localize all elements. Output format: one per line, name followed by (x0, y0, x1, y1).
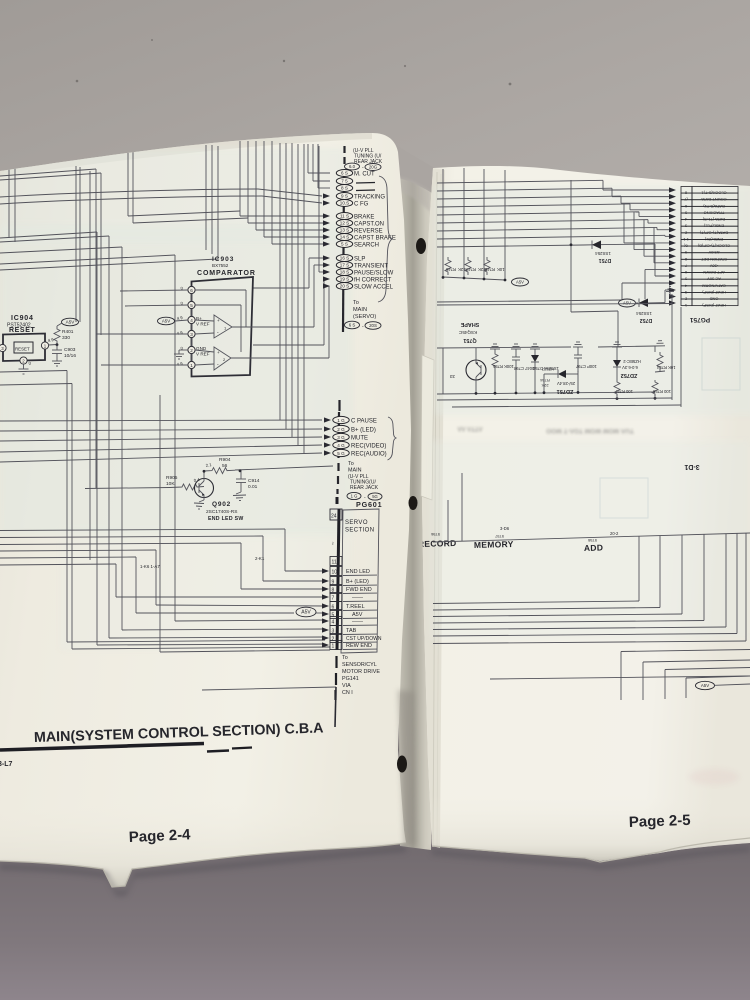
svg-text:IC904: IC904 (11, 315, 34, 322)
svg-text:4 G: 4 G (337, 443, 345, 448)
svg-text:6.0: 6.0 (349, 164, 356, 169)
svg-text:5 S: 5 S (341, 242, 348, 247)
svg-text:B+ (LED): B+ (LED) (346, 579, 369, 585)
svg-text:END LED: END LED (346, 569, 370, 575)
svg-text:0.01: 0.01 (248, 484, 258, 490)
svg-text:7: 7 (332, 596, 335, 602)
svg-text:2-K1: 2-K1 (255, 556, 265, 561)
svg-text:33: 33 (449, 374, 455, 379)
svg-text:6 S: 6 S (341, 171, 348, 176)
svg-text:2: 2 (332, 637, 335, 643)
svg-text:4: 4 (190, 318, 193, 323)
svg-text:5756: 5756 (430, 532, 440, 537)
svg-text:5 G: 5 G (337, 451, 345, 456)
svg-text:(SERVO): (SERVO) (353, 314, 376, 320)
svg-text:A5V: A5V (701, 683, 709, 688)
svg-text:Q751: Q751 (463, 337, 476, 343)
svg-text:A5V: A5V (301, 610, 311, 616)
svg-text:BX7552: BX7552 (212, 263, 229, 268)
svg-text:BRAKE: BRAKE (354, 214, 374, 220)
svg-text:20S: 20S (369, 323, 377, 328)
svg-text:24: 24 (331, 514, 337, 520)
svg-text:C PAUSE: C PAUSE (351, 418, 377, 424)
svg-text:HEAT (DISP): HEAT (DISP) (702, 303, 726, 308)
svg-text:8.2K: 8.2K (458, 267, 467, 272)
svg-text:R748: R748 (484, 267, 495, 272)
svg-text:SLP: SLP (354, 256, 365, 262)
svg-text:10: 10 (332, 570, 338, 576)
svg-text:5: 5 (190, 303, 193, 308)
svg-text:25/-28.4V: 25/-28.4V (557, 381, 575, 386)
svg-text:PG751: PG751 (690, 316, 711, 323)
svg-text:19 S: 19 S (340, 277, 349, 282)
svg-text:R754: R754 (656, 365, 667, 370)
svg-text:D751: D751 (599, 257, 612, 263)
svg-text:R754: R754 (539, 378, 549, 383)
svg-text:R905: R905 (166, 475, 178, 481)
svg-text:1 G: 1 G (337, 418, 345, 423)
svg-text:FWD END: FWD END (346, 587, 372, 593)
svg-text:V REF: V REF (196, 322, 210, 327)
svg-text:A5V: A5V (623, 301, 631, 306)
svg-text:100: 100 (663, 389, 671, 394)
svg-text:6.0-6.3V: 6.0-6.3V (622, 365, 638, 370)
svg-text:ɅTTɅ ɅɅ: ɅTTɅ ɅɅ (457, 425, 482, 431)
svg-text:12 S: 12 S (340, 221, 349, 226)
svg-text:3 G: 3 G (337, 435, 345, 440)
svg-text:100: 100 (625, 389, 633, 394)
svg-text:SECTION: SECTION (345, 528, 374, 534)
svg-text:T.REEL: T.REEL (346, 604, 365, 610)
svg-text:A5V: A5V (352, 612, 363, 618)
svg-text:3: 3 (190, 332, 193, 337)
svg-text:B+ (LED): B+ (LED) (351, 427, 376, 433)
svg-text:13 S: 13 S (340, 228, 349, 233)
svg-text:5757: 5757 (494, 534, 504, 539)
svg-text:4: 4 (332, 620, 335, 626)
svg-text:100K: 100K (504, 364, 514, 369)
svg-text:22K: 22K (541, 383, 548, 388)
svg-text:2 G: 2 G (337, 427, 345, 432)
svg-text:R758: R758 (652, 389, 663, 394)
svg-text:REVERSE: REVERSE (354, 228, 383, 234)
svg-text:MOTOR DRIVE: MOTOR DRIVE (342, 669, 380, 675)
svg-text:A5V: A5V (162, 319, 170, 324)
svg-text:≀: ≀ (332, 541, 334, 547)
svg-text:ZD752: ZD752 (621, 372, 638, 378)
svg-text:CST UP/DOWN: CST UP/DOWN (346, 636, 382, 642)
svg-text:330: 330 (62, 335, 70, 341)
svg-text:——: —— (352, 619, 364, 625)
svg-text:A5V: A5V (516, 280, 524, 285)
svg-text:2: 2 (190, 348, 193, 353)
svg-text:17 S: 17 S (340, 263, 349, 268)
svg-text:C FG: C FG (354, 201, 369, 207)
svg-text:HZ5BC-2: HZ5BC-2 (623, 359, 641, 364)
svg-text:SENSOR/CYL: SENSOR/CYL (342, 662, 377, 668)
svg-text:PG601: PG601 (356, 500, 382, 509)
svg-text:REAR JACK: REAR JACK (350, 485, 379, 491)
svg-text:16 S: 16 S (340, 256, 349, 261)
svg-text:7 5: 7 5 (341, 179, 348, 184)
svg-text:11 S: 11 S (340, 214, 349, 219)
svg-text:TRACKING: TRACKING (354, 194, 385, 200)
svg-text:20G: 20G (369, 165, 378, 170)
svg-text:R401: R401 (62, 329, 74, 335)
svg-text:6 S: 6 S (349, 323, 356, 328)
svg-text:10K: 10K (497, 267, 505, 272)
svg-text:Page 2-5: Page 2-5 (629, 812, 691, 831)
svg-text:M. CUT: M. CUT (354, 171, 375, 177)
svg-text:1: 1 (332, 644, 335, 650)
svg-text:11: 11 (332, 560, 337, 566)
svg-text:PG141: PG141 (342, 676, 359, 682)
svg-text:C797: C797 (575, 364, 586, 369)
svg-text:ZD751: ZD751 (557, 388, 574, 394)
svg-text:END LED SW: END LED SW (208, 516, 244, 522)
svg-text:REC(AUDIO): REC(AUDIO) (351, 451, 387, 457)
svg-text:CN I: CN I (342, 690, 353, 696)
svg-text:To: To (353, 300, 359, 306)
svg-text:To: To (342, 655, 348, 661)
svg-text:V REF: V REF (196, 352, 210, 357)
svg-text:HZ5Z7: HZ5Z7 (541, 367, 554, 372)
svg-text:R747: R747 (465, 267, 476, 272)
svg-text:TUɅ MOM WOM TOɅ-T MOO: TUɅ MOM WOM TOɅ-T MOO (546, 427, 634, 434)
svg-text:+: + (217, 318, 220, 323)
svg-text:PAUSE/SLOW: PAUSE/SLOW (354, 270, 394, 276)
svg-text:100P: 100P (587, 364, 597, 369)
svg-text:2SC1740S-RS: 2SC1740S-RS (206, 509, 237, 515)
svg-text:Q902: Q902 (212, 501, 231, 508)
svg-text:R746: R746 (445, 267, 456, 272)
svg-text:KSQ45C: KSQ45C (458, 330, 477, 335)
svg-text:MAIN: MAIN (348, 468, 362, 474)
svg-text:R757: R757 (614, 389, 625, 394)
svg-text:MUTE: MUTE (351, 435, 368, 441)
svg-text:SLOW ACCEL: SLOW ACCEL (354, 284, 394, 290)
svg-text:10/16: 10/16 (64, 353, 76, 359)
svg-text:Page 2-4: Page 2-4 (128, 826, 191, 846)
svg-text:+: + (217, 350, 220, 355)
svg-text:9 S: 9 S (341, 194, 348, 199)
svg-text:1SS254: 1SS254 (636, 311, 652, 316)
svg-text:TAB: TAB (346, 628, 357, 634)
svg-text:SHAPE: SHAPE (460, 321, 479, 327)
svg-text:R904: R904 (219, 457, 231, 463)
svg-text:1: 1 (190, 363, 193, 368)
svg-text:18 S: 18 S (340, 270, 349, 275)
svg-text:20 S: 20 S (340, 284, 349, 289)
svg-text:COMPARATOR: COMPARATOR (197, 270, 256, 277)
svg-text:CAPST.ON: CAPST.ON (354, 221, 384, 227)
svg-text:1SS254: 1SS254 (595, 251, 611, 256)
svg-text:ADD: ADD (584, 542, 604, 553)
svg-text:To: To (348, 461, 354, 467)
svg-text:5G: 5G (372, 494, 378, 499)
svg-text:IC903: IC903 (212, 256, 234, 263)
svg-text:C914: C914 (248, 478, 260, 484)
svg-text:8 S: 8 S (341, 186, 348, 191)
svg-text:10.S: 10.S (340, 201, 349, 206)
svg-text:RECORD: RECORD (418, 538, 457, 549)
svg-text:A5V: A5V (66, 320, 76, 325)
svg-text:3-D1: 3-D1 (684, 463, 699, 470)
svg-text:C903: C903 (64, 347, 76, 353)
svg-text:D753: D753 (532, 366, 543, 371)
svg-text:VIA: VIA (342, 683, 351, 689)
svg-text:14 S: 14 S (340, 235, 349, 240)
svg-text:RESET: RESET (15, 347, 30, 352)
svg-text:C798: C798 (513, 366, 524, 371)
svg-text:5: 5 (332, 613, 335, 619)
svg-text:6: 6 (190, 288, 193, 293)
svg-text:MAIN: MAIN (353, 307, 367, 313)
svg-text:——: —— (352, 595, 364, 601)
svg-text:REW END: REW END (346, 643, 372, 649)
svg-text:20-2: 20-2 (610, 531, 619, 536)
svg-text:REC(VIDEO): REC(VIDEO) (351, 443, 386, 449)
svg-text:TRANSIENT: TRANSIENT (354, 263, 388, 269)
svg-text:D752: D752 (640, 317, 653, 323)
svg-text:3-L7: 3-L7 (0, 761, 13, 768)
svg-text:SERVO: SERVO (345, 520, 368, 526)
svg-text:1-K6 1-A7: 1-K6 1-A7 (140, 564, 160, 569)
svg-text:5758: 5758 (587, 538, 597, 543)
svg-text:1 G: 1 G (351, 494, 358, 499)
svg-text:10K: 10K (166, 481, 175, 487)
svg-text:3-D6: 3-D6 (500, 526, 510, 531)
svg-text:SEARCH: SEARCH (354, 242, 379, 248)
svg-text:R755: R755 (492, 364, 503, 369)
